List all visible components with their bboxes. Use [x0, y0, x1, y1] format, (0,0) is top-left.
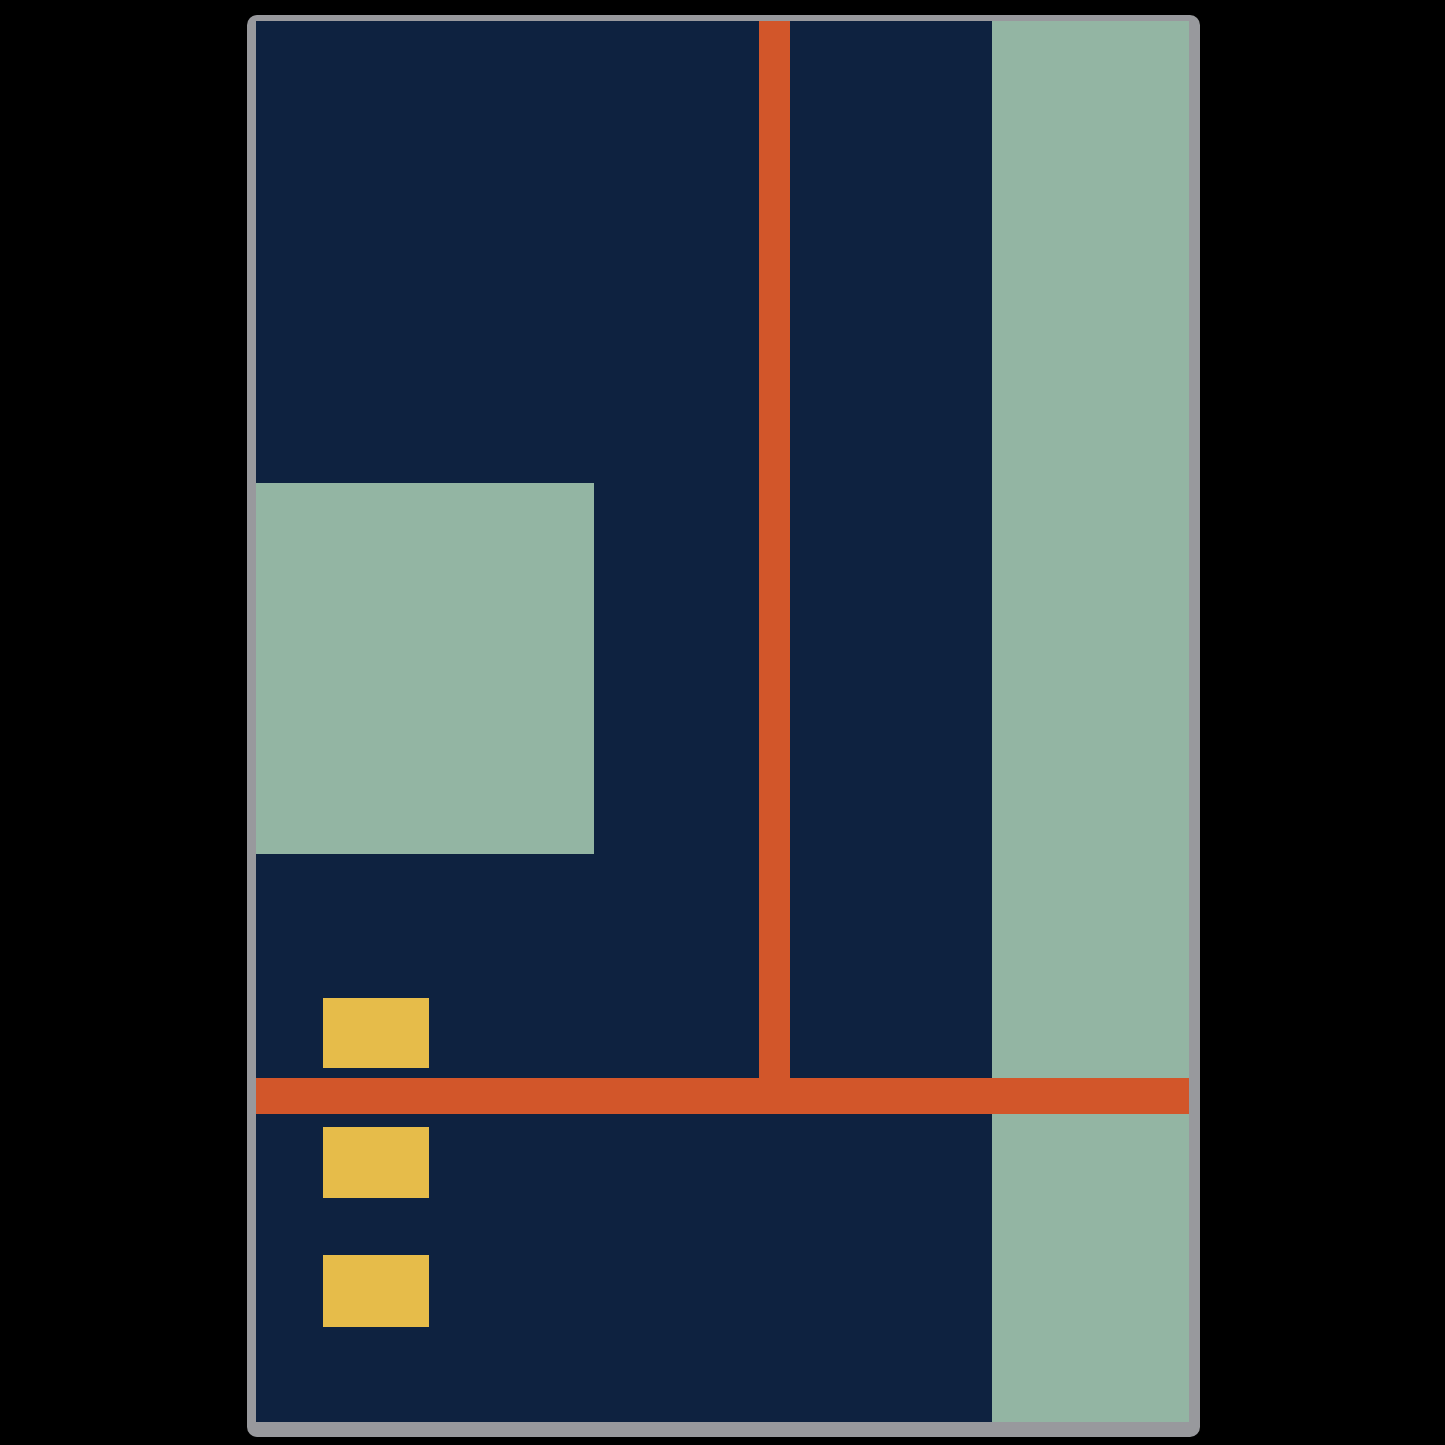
gold-square-middle: [323, 1127, 429, 1198]
horizontal-orange-line: [256, 1078, 1189, 1114]
page-background: [0, 0, 1445, 1445]
right-sage-stripe: [992, 21, 1189, 1422]
left-sage-square: [256, 483, 594, 854]
print-frame: [247, 15, 1200, 1437]
gold-square-top: [323, 998, 429, 1068]
art-print-canvas: [256, 21, 1189, 1422]
vertical-orange-line: [759, 21, 790, 1078]
gold-square-bottom: [323, 1255, 429, 1327]
